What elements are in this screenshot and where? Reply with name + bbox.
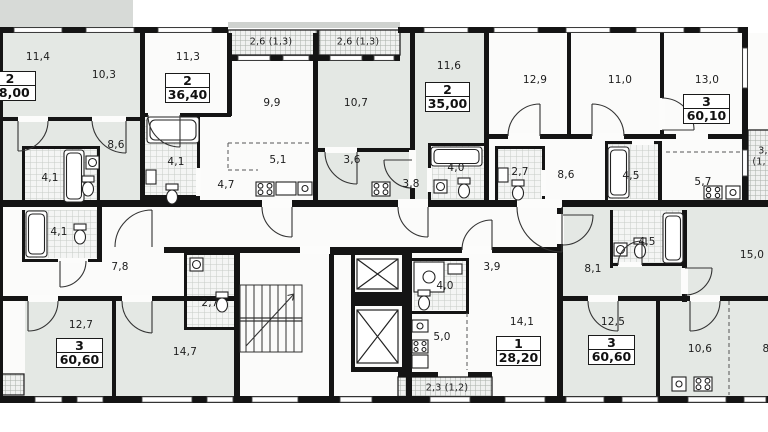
room-area-label: 8,6	[557, 169, 574, 181]
room-area-label: 4,0	[436, 280, 453, 292]
room-area-label: 4,1	[50, 226, 67, 238]
room-area-label: 12,9	[523, 74, 547, 86]
rooms-count: 2	[426, 83, 469, 97]
apartment-stamp: 2 36,40	[165, 73, 210, 103]
apartment-stamp: 1 28,20	[496, 336, 541, 366]
apartment-stamp: 2 35,00	[425, 82, 470, 112]
room-area-label: 4,5	[622, 170, 639, 182]
room-area-label: 12,7	[69, 319, 93, 331]
room-area-label: 11,4	[26, 51, 50, 63]
total-area: 60,60	[589, 350, 634, 364]
apartment-stamp: 2 48,00	[0, 71, 36, 101]
room-area-label: 4,1	[41, 172, 58, 184]
balcony-area-label: 2,6 (1,3)	[337, 37, 379, 48]
room-area-label: 4,0	[447, 162, 464, 174]
room-area-label: 7,8	[111, 261, 128, 273]
rooms-count: 3	[589, 336, 634, 350]
room-area-label: 13,0	[695, 74, 719, 86]
clipped-room-label: 8	[763, 343, 768, 355]
room-area-label: 12,5	[601, 316, 625, 328]
floor-plan-drawing	[0, 0, 768, 432]
total-area: 60,10	[684, 109, 729, 123]
total-area: 48,00	[0, 86, 35, 100]
rooms-count: 3	[57, 339, 102, 353]
total-area: 60,60	[57, 353, 102, 367]
room-area-label: 11,6	[437, 60, 461, 72]
room-area-label: 9,9	[263, 97, 280, 109]
apartment-stamp: 3 60,10	[683, 94, 730, 124]
room-area-label: 4,5	[638, 236, 655, 248]
room-area-label: 2,7	[201, 297, 218, 309]
room-area-label: 3,6	[343, 154, 360, 166]
room-area-label: 5,7	[694, 176, 711, 188]
room-area-label: 8,1	[584, 263, 601, 275]
balcony-area-label: 2,3 (1,2)	[426, 383, 468, 394]
apartment-stamp: 3 60,60	[588, 335, 635, 365]
room-area-label: 3,8	[402, 178, 419, 190]
apartment-stamp: 3 60,60	[56, 338, 103, 368]
rooms-count: 2	[166, 74, 209, 88]
room-area-label: 3,9	[483, 261, 500, 273]
room-area-label: 15,0	[740, 249, 764, 261]
room-area-label: 5,0	[433, 331, 450, 343]
room-area-label: 4,7	[217, 179, 234, 191]
floor-plan: 11,4 10,3 8,6 4,1 11,3 9,9 5,1 4,7 4,1 2…	[0, 0, 768, 432]
rooms-count: 1	[497, 337, 540, 351]
elevator-icon	[357, 259, 398, 363]
room-area-label: 5,1	[269, 154, 286, 166]
room-area-label: 14,7	[173, 346, 197, 358]
total-area: 28,20	[497, 351, 540, 365]
room-area-label: 11,0	[608, 74, 632, 86]
room-area-label: 10,6	[688, 343, 712, 355]
room-area-label: 10,3	[92, 69, 116, 81]
rooms-count: 3	[684, 95, 729, 109]
room-area-label: 11,3	[176, 51, 200, 63]
balcony-area-label: 2,6 (1,3)	[250, 37, 292, 48]
room-area-label: 8,6	[107, 139, 124, 151]
room-area-label: 10,7	[344, 97, 368, 109]
rooms-count: 2	[0, 72, 35, 86]
clipped-balcony-label: (1,	[752, 157, 765, 168]
room-area-label: 4,1	[167, 156, 184, 168]
room-area-label: 14,1	[510, 316, 534, 328]
clipped-balcony-label: 3,	[758, 146, 767, 157]
room-area-label: 2,7	[511, 166, 528, 178]
total-area: 35,00	[426, 97, 469, 111]
total-area: 36,40	[166, 88, 209, 102]
